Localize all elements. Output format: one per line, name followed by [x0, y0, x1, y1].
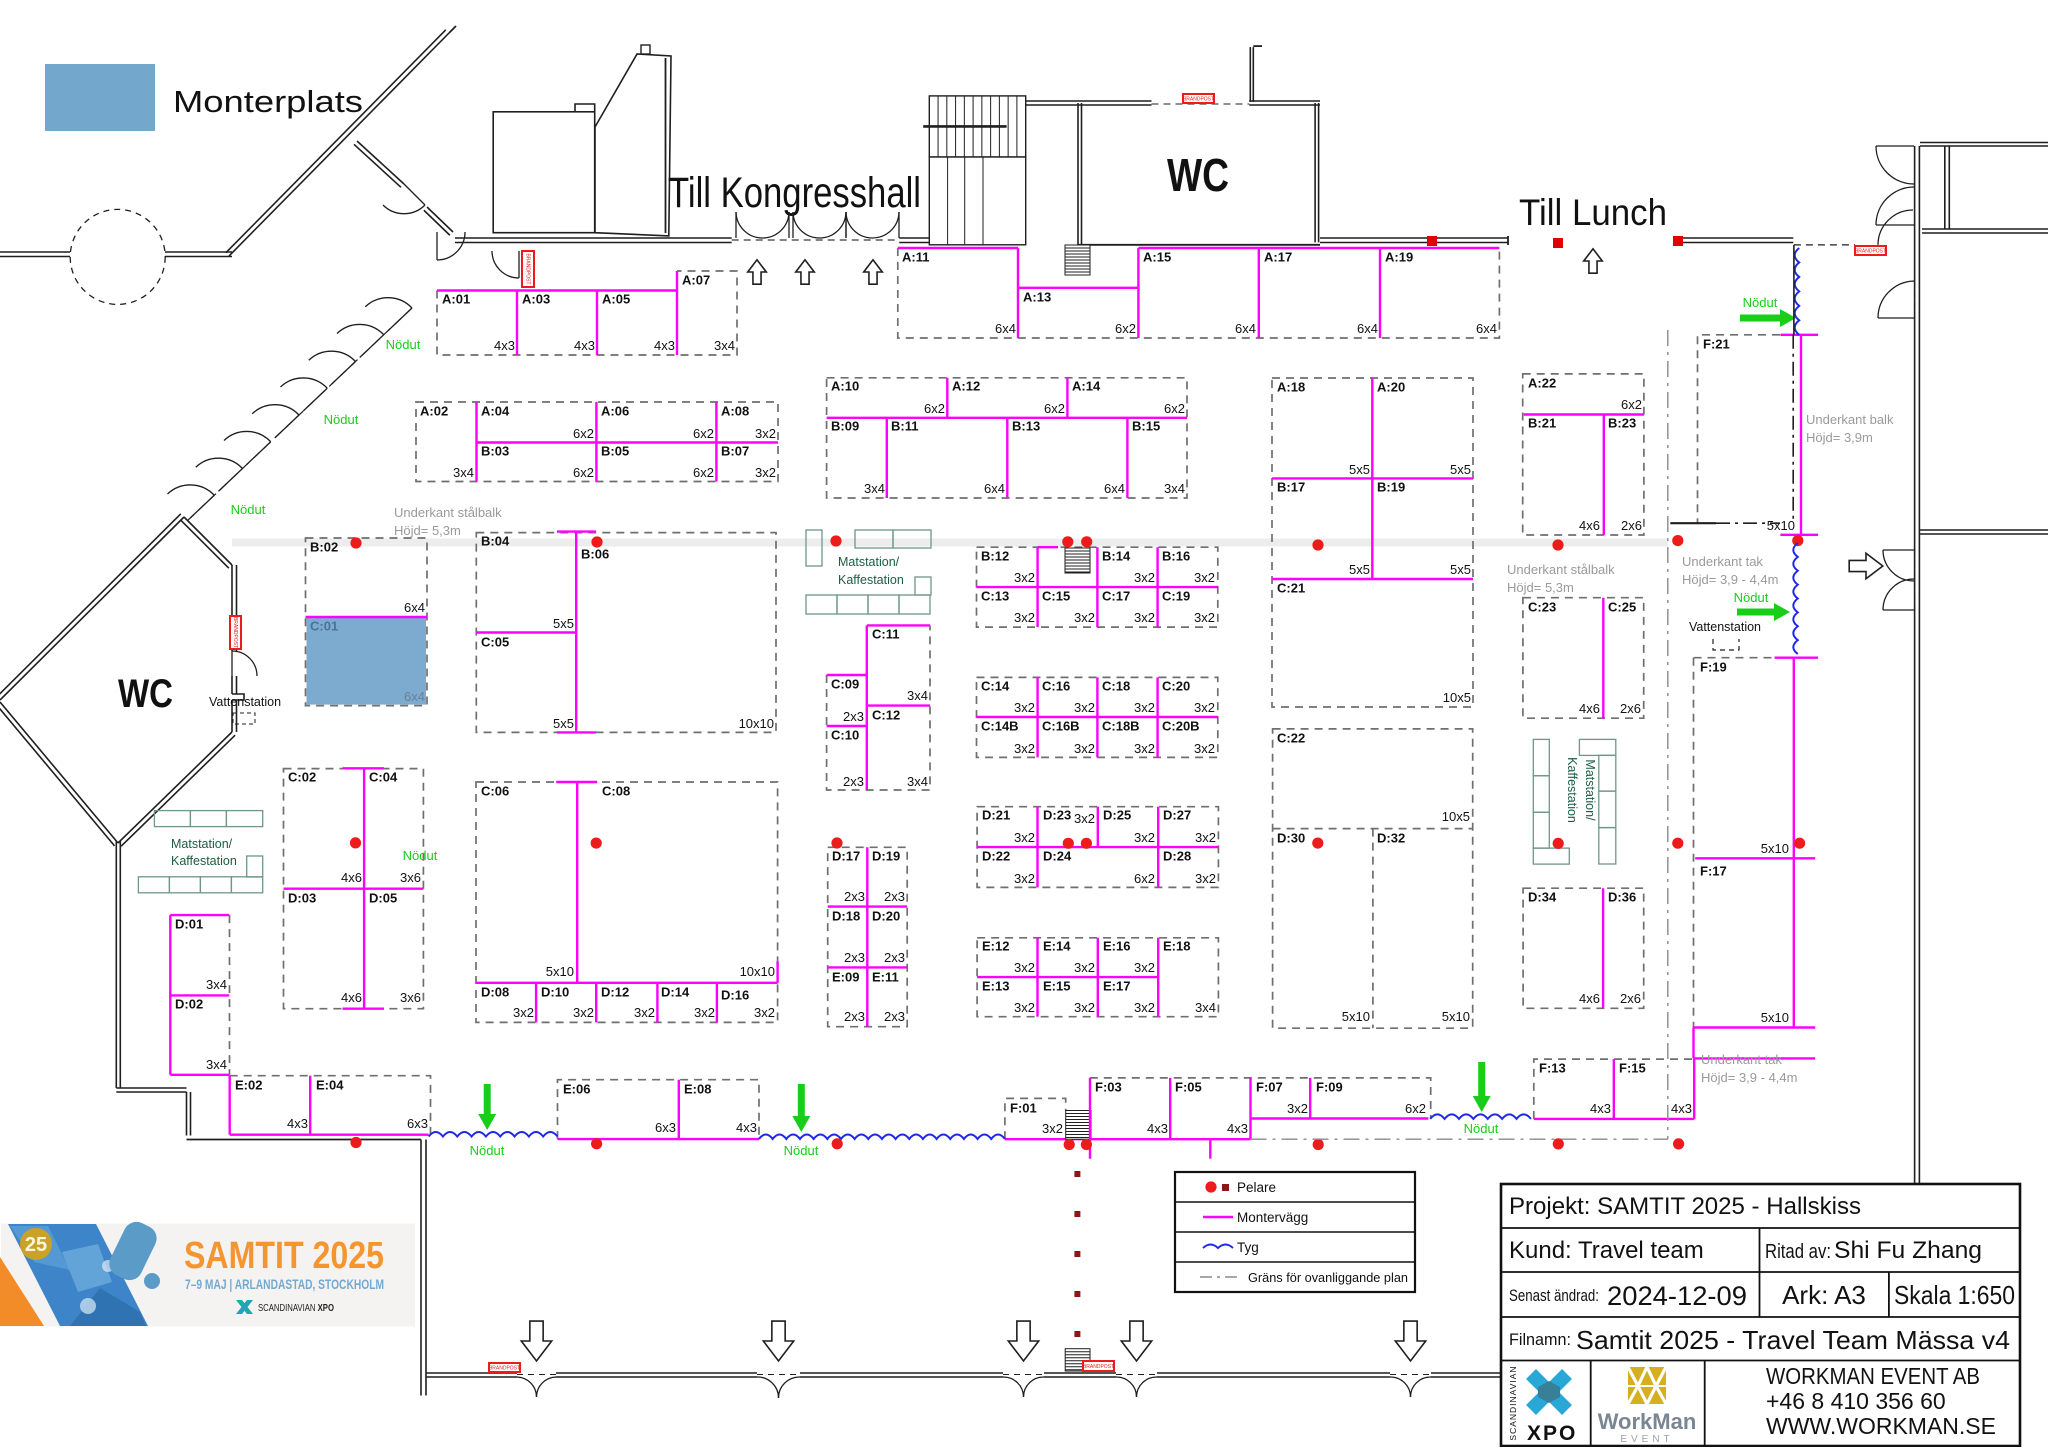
svg-text:5x5: 5x5	[553, 716, 574, 731]
svg-text:SCANDINAVIAN XPO: SCANDINAVIAN XPO	[258, 1302, 334, 1314]
svg-text:C:25: C:25	[1608, 600, 1636, 615]
svg-text:3x2: 3x2	[1195, 830, 1216, 845]
svg-text:5x5: 5x5	[1450, 562, 1471, 577]
svg-text:F:01: F:01	[1010, 1101, 1037, 1116]
svg-text:6x3: 6x3	[655, 1120, 676, 1135]
svg-text:A:15: A:15	[1143, 250, 1171, 265]
svg-text:3x2: 3x2	[755, 465, 776, 480]
svg-text:4x3: 4x3	[1590, 1101, 1611, 1116]
svg-text:D:34: D:34	[1528, 890, 1557, 905]
svg-text:Ark: A3: Ark: A3	[1782, 1280, 1866, 1310]
svg-text:Höjd= 5,3m: Höjd= 5,3m	[1507, 580, 1574, 595]
svg-text:C:22: C:22	[1277, 731, 1305, 746]
svg-text:Projekt: SAMTIT 2025 - Hallski: Projekt: SAMTIT 2025 - Hallskiss	[1509, 1193, 1861, 1220]
svg-text:Till Kongresshall: Till Kongresshall	[668, 169, 921, 217]
svg-text:E:08: E:08	[684, 1082, 711, 1097]
svg-text:4x3: 4x3	[494, 338, 515, 353]
svg-text:2x6: 2x6	[1620, 991, 1641, 1006]
svg-text:C:18: C:18	[1102, 679, 1130, 694]
svg-text:3x6: 3x6	[400, 990, 421, 1005]
svg-text:Nödut: Nödut	[324, 412, 359, 427]
svg-text:3x2: 3x2	[1194, 741, 1215, 756]
svg-text:B:12: B:12	[981, 549, 1009, 564]
svg-text:A:22: A:22	[1528, 376, 1556, 391]
svg-text:E:09: E:09	[832, 970, 859, 985]
svg-text:10x5: 10x5	[1442, 809, 1470, 824]
svg-text:6x4: 6x4	[1235, 321, 1256, 336]
svg-text:C:08: C:08	[602, 784, 630, 799]
svg-text:D:08: D:08	[481, 985, 509, 1000]
svg-text:5x5: 5x5	[1349, 462, 1370, 477]
svg-text:3x2: 3x2	[513, 1005, 534, 1020]
svg-text:3x2: 3x2	[1014, 830, 1035, 845]
svg-text:B:23: B:23	[1608, 416, 1636, 431]
svg-text:D:01: D:01	[175, 917, 203, 932]
svg-text:D:27: D:27	[1163, 808, 1191, 823]
svg-text:Pelare: Pelare	[1237, 1180, 1276, 1195]
svg-text:A:18: A:18	[1277, 380, 1305, 395]
svg-text:Nödut: Nödut	[470, 1143, 505, 1158]
svg-text:Underkant balk: Underkant balk	[1806, 412, 1894, 427]
svg-text:XPO: XPO	[1527, 1422, 1577, 1445]
svg-text:5x5: 5x5	[1450, 462, 1471, 477]
svg-text:Nödut: Nödut	[1743, 295, 1778, 310]
svg-text:F:17: F:17	[1700, 864, 1727, 879]
svg-text:6x4: 6x4	[404, 689, 425, 704]
svg-text:6x2: 6x2	[1405, 1101, 1426, 1116]
svg-text:2x3: 2x3	[844, 1009, 865, 1024]
svg-text:C:15: C:15	[1042, 589, 1070, 604]
svg-text:E:14: E:14	[1043, 939, 1071, 954]
svg-text:Underkant tak: Underkant tak	[1701, 1052, 1782, 1067]
svg-text:WORKMAN EVENT AB: WORKMAN EVENT AB	[1766, 1363, 1980, 1389]
svg-text:A:17: A:17	[1264, 250, 1292, 265]
svg-text:6x4: 6x4	[995, 321, 1016, 336]
svg-text:C:11: C:11	[872, 627, 899, 642]
svg-text:C:09: C:09	[831, 677, 859, 692]
svg-text:D:10: D:10	[541, 985, 569, 1000]
svg-text:D:22: D:22	[982, 849, 1010, 864]
svg-text:E:02: E:02	[235, 1078, 262, 1093]
svg-text:2x6: 2x6	[1621, 518, 1642, 533]
svg-text:B:17: B:17	[1277, 480, 1305, 495]
svg-text:B:13: B:13	[1012, 419, 1040, 434]
svg-text:A:05: A:05	[602, 292, 630, 307]
svg-text:3x2: 3x2	[1014, 570, 1035, 585]
svg-text:3x4: 3x4	[714, 338, 735, 353]
svg-text:4x3: 4x3	[1671, 1101, 1692, 1116]
svg-text:5x10: 5x10	[1761, 841, 1789, 856]
svg-text:C:13: C:13	[981, 589, 1009, 604]
svg-text:4x3: 4x3	[736, 1120, 757, 1135]
svg-text:A:02: A:02	[420, 404, 448, 419]
svg-text:B:15: B:15	[1132, 419, 1160, 434]
svg-text:Nödut: Nödut	[784, 1143, 819, 1158]
svg-text:E:04: E:04	[316, 1078, 344, 1093]
svg-text:F:05: F:05	[1175, 1080, 1202, 1095]
svg-text:E:16: E:16	[1103, 939, 1130, 954]
svg-text:3x2: 3x2	[1134, 610, 1155, 625]
svg-text:4x3: 4x3	[1147, 1121, 1168, 1136]
svg-text:F:13: F:13	[1539, 1061, 1566, 1076]
svg-text:EVENT: EVENT	[1620, 1434, 1673, 1445]
svg-text:3x2: 3x2	[1074, 741, 1095, 756]
svg-text:B:06: B:06	[581, 547, 609, 562]
svg-text:Matstation/: Matstation/	[1583, 759, 1597, 821]
svg-text:E:12: E:12	[982, 939, 1009, 954]
svg-text:C:20: C:20	[1162, 679, 1190, 694]
svg-text:2024-12-09: 2024-12-09	[1607, 1281, 1747, 1311]
svg-text:Vattenstation: Vattenstation	[209, 695, 281, 709]
svg-text:B:05: B:05	[601, 444, 629, 459]
svg-text:D:19: D:19	[872, 849, 900, 864]
svg-text:3x4: 3x4	[864, 481, 885, 496]
svg-text:C:10: C:10	[831, 728, 859, 743]
svg-text:SCANDINAVIAN: SCANDINAVIAN	[1508, 1365, 1518, 1440]
svg-text:A:04: A:04	[481, 404, 510, 419]
svg-text:6x3: 6x3	[407, 1116, 428, 1131]
svg-text:3x2: 3x2	[1074, 960, 1095, 975]
svg-text:6x2: 6x2	[924, 401, 945, 416]
svg-text:6x2: 6x2	[1621, 397, 1642, 412]
svg-text:3x2: 3x2	[1134, 960, 1155, 975]
svg-text:6x4: 6x4	[984, 481, 1005, 496]
svg-text:F:09: F:09	[1316, 1080, 1343, 1095]
svg-text:2x3: 2x3	[884, 889, 905, 904]
svg-text:5x10: 5x10	[1767, 518, 1795, 533]
svg-text:Nödut: Nödut	[1464, 1121, 1499, 1136]
svg-text:4x3: 4x3	[574, 338, 595, 353]
svg-text:D:24: D:24	[1043, 849, 1072, 864]
svg-text:D:14: D:14	[661, 985, 690, 1000]
svg-text:3x2: 3x2	[1134, 700, 1155, 715]
svg-text:Tyg: Tyg	[1237, 1240, 1259, 1255]
svg-text:E:11: E:11	[872, 970, 899, 985]
svg-text:Shi Fu Zhang: Shi Fu Zhang	[1834, 1237, 1982, 1264]
svg-text:WC: WC	[1167, 149, 1229, 201]
svg-text:3x2: 3x2	[1014, 700, 1035, 715]
svg-text:E:13: E:13	[982, 979, 1009, 994]
svg-text:+46 8 410 356 60: +46 8 410 356 60	[1766, 1388, 1946, 1414]
svg-text:2x3: 2x3	[843, 774, 864, 789]
svg-text:6x2: 6x2	[1134, 871, 1155, 886]
svg-text:D:17: D:17	[832, 849, 860, 864]
svg-text:Underkant stålbalk: Underkant stålbalk	[1507, 562, 1615, 577]
svg-text:5x10: 5x10	[1342, 1009, 1370, 1024]
svg-text:D:05: D:05	[369, 891, 397, 906]
svg-text:Senast ändrad:: Senast ändrad:	[1509, 1287, 1599, 1305]
svg-text:BRANDPOST: BRANDPOST	[232, 617, 238, 648]
svg-text:6x2: 6x2	[1044, 401, 1065, 416]
svg-text:F:19: F:19	[1700, 660, 1727, 675]
svg-text:3x2: 3x2	[1042, 1121, 1063, 1136]
svg-text:D:28: D:28	[1163, 849, 1191, 864]
svg-text:E:06: E:06	[563, 1082, 590, 1097]
svg-text:E:17: E:17	[1103, 979, 1130, 994]
svg-text:D:30: D:30	[1277, 831, 1305, 846]
svg-text:6x2: 6x2	[573, 426, 594, 441]
svg-text:6x2: 6x2	[1164, 401, 1185, 416]
svg-text:A:11: A:11	[902, 250, 929, 265]
svg-text:3x4: 3x4	[206, 977, 227, 992]
svg-text:Kaffestation: Kaffestation	[838, 573, 904, 587]
svg-text:3x2: 3x2	[1134, 741, 1155, 756]
svg-text:A:03: A:03	[522, 292, 550, 307]
svg-text:B:21: B:21	[1528, 416, 1556, 431]
svg-text:Vattenstation: Vattenstation	[1689, 620, 1761, 634]
svg-text:Gräns för ovanliggande plan: Gräns för ovanliggande plan	[1248, 1270, 1408, 1285]
svg-text:3x2: 3x2	[1134, 570, 1155, 585]
svg-text:Samtit 2025 - Travel Team Mäss: Samtit 2025 - Travel Team Mässa v4	[1576, 1325, 2010, 1355]
svg-text:3x2: 3x2	[1014, 1000, 1035, 1015]
svg-text:D:03: D:03	[288, 891, 316, 906]
svg-text:6x2: 6x2	[693, 465, 714, 480]
svg-text:Skala 1:650: Skala 1:650	[1894, 1280, 2015, 1310]
svg-text:4x3: 4x3	[287, 1116, 308, 1131]
svg-text:B:02: B:02	[310, 540, 338, 555]
svg-text:4x6: 4x6	[341, 870, 362, 885]
svg-text:Matstation/: Matstation/	[838, 555, 900, 569]
svg-text:Kaffestation: Kaffestation	[1565, 757, 1579, 823]
svg-text:B:03: B:03	[481, 444, 509, 459]
svg-text:3x2: 3x2	[1074, 1000, 1095, 1015]
svg-text:A:13: A:13	[1023, 290, 1051, 305]
svg-text:6x2: 6x2	[1115, 321, 1136, 336]
svg-text:BRANDPOST: BRANDPOST	[525, 253, 531, 284]
svg-text:4x6: 4x6	[1579, 991, 1600, 1006]
svg-text:WorkMan: WorkMan	[1598, 1409, 1697, 1434]
svg-text:4x6: 4x6	[1579, 518, 1600, 533]
svg-text:C:05: C:05	[481, 635, 509, 650]
svg-text:C:01: C:01	[310, 619, 338, 634]
svg-text:10x10: 10x10	[740, 964, 775, 979]
svg-text:F:07: F:07	[1256, 1080, 1283, 1095]
svg-text:3x2: 3x2	[1074, 610, 1095, 625]
svg-text:3x2: 3x2	[755, 426, 776, 441]
svg-text:3x2: 3x2	[1014, 610, 1035, 625]
svg-text:3x2: 3x2	[1287, 1101, 1308, 1116]
svg-text:4x3: 4x3	[1227, 1121, 1248, 1136]
svg-text:D:20: D:20	[872, 909, 900, 924]
svg-text:Kaffestation: Kaffestation	[171, 854, 237, 868]
svg-text:A:20: A:20	[1377, 380, 1405, 395]
svg-text:C:19: C:19	[1162, 589, 1190, 604]
svg-text:3x2: 3x2	[634, 1005, 655, 1020]
svg-text:Kund: Travel team: Kund: Travel team	[1509, 1237, 1704, 1264]
svg-text:C:12: C:12	[872, 708, 900, 723]
svg-text:Nödut: Nödut	[231, 502, 266, 517]
svg-text:B:04: B:04	[481, 534, 510, 549]
svg-text:5x5: 5x5	[1349, 562, 1370, 577]
svg-text:3x4: 3x4	[1164, 481, 1185, 496]
svg-text:7–9 MAJ | ARLANDASTAD, STOCK: 7–9 MAJ | ARLANDASTAD, STOCKHOLM	[185, 1276, 384, 1292]
svg-text:5x10: 5x10	[1761, 1010, 1789, 1025]
svg-text:Höjd= 3,9m: Höjd= 3,9m	[1806, 430, 1873, 445]
svg-text:BRANDPOST: BRANDPOST	[1083, 1364, 1114, 1370]
svg-text:6x2: 6x2	[573, 465, 594, 480]
svg-text:3x2: 3x2	[1134, 1000, 1155, 1015]
svg-text:3x4: 3x4	[1195, 1000, 1216, 1015]
svg-text:F:03: F:03	[1095, 1080, 1122, 1095]
svg-text:6x2: 6x2	[693, 426, 714, 441]
svg-text:3x6: 3x6	[400, 870, 421, 885]
svg-text:BRANDPOST: BRANDPOST	[489, 1366, 520, 1372]
svg-text:3x2: 3x2	[1195, 871, 1216, 886]
svg-text:Montervägg: Montervägg	[1237, 1210, 1308, 1225]
svg-text:3x2: 3x2	[694, 1005, 715, 1020]
svg-text:3x4: 3x4	[453, 465, 474, 480]
svg-text:WWW.WORKMAN.SE: WWW.WORKMAN.SE	[1766, 1413, 1996, 1439]
svg-text:A:19: A:19	[1385, 250, 1413, 265]
svg-text:B:11: B:11	[891, 419, 918, 434]
svg-text:SAMTIT 2025: SAMTIT 2025	[184, 1235, 384, 1277]
svg-text:D:18: D:18	[832, 909, 860, 924]
svg-text:Ritad av:: Ritad av:	[1765, 1241, 1831, 1263]
svg-text:A:07: A:07	[682, 273, 710, 288]
svg-text:C:02: C:02	[288, 770, 316, 785]
svg-text:F:15: F:15	[1619, 1061, 1646, 1076]
svg-text:5x10: 5x10	[1442, 1009, 1470, 1024]
svg-text:2x3: 2x3	[884, 950, 905, 965]
svg-text:D:32: D:32	[1377, 831, 1405, 846]
svg-text:3x2: 3x2	[754, 1005, 775, 1020]
svg-text:2x3: 2x3	[884, 1009, 905, 1024]
svg-text:3x4: 3x4	[907, 688, 928, 703]
svg-text:A:14: A:14	[1072, 379, 1101, 394]
svg-text:2x3: 2x3	[844, 950, 865, 965]
svg-text:6x4: 6x4	[1104, 481, 1125, 496]
svg-text:A:06: A:06	[601, 404, 629, 419]
svg-text:F:21: F:21	[1703, 337, 1730, 352]
svg-text:6x4: 6x4	[1476, 321, 1497, 336]
svg-text:D:21: D:21	[982, 808, 1010, 823]
svg-text:Höjd= 5,3m: Höjd= 5,3m	[394, 523, 461, 538]
svg-text:3x2: 3x2	[1194, 610, 1215, 625]
svg-text:C:14: C:14	[981, 679, 1010, 694]
svg-text:2x6: 2x6	[1620, 701, 1641, 716]
svg-text:Till Lunch: Till Lunch	[1519, 192, 1667, 233]
svg-text:Underkant stålbalk: Underkant stålbalk	[394, 505, 502, 520]
svg-text:B:07: B:07	[721, 444, 749, 459]
svg-text:3x2: 3x2	[573, 1005, 594, 1020]
svg-text:3x2: 3x2	[1014, 741, 1035, 756]
svg-text:D:36: D:36	[1608, 890, 1636, 905]
svg-text:E:18: E:18	[1163, 939, 1190, 954]
svg-text:6x4: 6x4	[1357, 321, 1378, 336]
svg-text:B:14: B:14	[1102, 549, 1131, 564]
svg-text:3x4: 3x4	[206, 1057, 227, 1072]
svg-text:A:08: A:08	[721, 404, 749, 419]
svg-text:4x6: 4x6	[1579, 701, 1600, 716]
svg-text:3x2: 3x2	[1194, 570, 1215, 585]
svg-text:Höjd= 3,9 - 4,4m: Höjd= 3,9 - 4,4m	[1701, 1070, 1797, 1085]
svg-text:B:16: B:16	[1162, 549, 1190, 564]
svg-text:BRANDPOST: BRANDPOST	[1855, 249, 1886, 255]
svg-text:C:20B: C:20B	[1162, 719, 1200, 734]
svg-text:3x2: 3x2	[1134, 830, 1155, 845]
svg-text:D:25: D:25	[1103, 808, 1131, 823]
svg-text:2x3: 2x3	[843, 709, 864, 724]
svg-text:C:06: C:06	[481, 784, 509, 799]
svg-text:Monterplats: Monterplats	[173, 84, 363, 119]
svg-text:3x2: 3x2	[1074, 811, 1095, 826]
svg-text:Filnamn:: Filnamn:	[1509, 1331, 1571, 1349]
svg-text:A:12: A:12	[952, 379, 980, 394]
svg-text:C:18B: C:18B	[1102, 719, 1140, 734]
svg-text:5x5: 5x5	[553, 616, 574, 631]
svg-text:C:14B: C:14B	[981, 719, 1019, 734]
svg-text:10x10: 10x10	[739, 716, 774, 731]
svg-text:C:04: C:04	[369, 770, 398, 785]
svg-text:Matstation/: Matstation/	[171, 837, 233, 851]
svg-text:C:17: C:17	[1102, 589, 1130, 604]
svg-text:5x10: 5x10	[546, 964, 574, 979]
svg-text:B:09: B:09	[831, 419, 859, 434]
svg-text:C:21: C:21	[1277, 581, 1305, 596]
svg-text:WC: WC	[118, 672, 173, 716]
svg-text:Höjd= 3,9 - 4,4m: Höjd= 3,9 - 4,4m	[1682, 572, 1778, 587]
svg-text:D:16: D:16	[721, 988, 749, 1003]
svg-text:C:23: C:23	[1528, 600, 1556, 615]
svg-text:B:19: B:19	[1377, 480, 1405, 495]
svg-text:3x2: 3x2	[1014, 871, 1035, 886]
svg-text:BRANDPOST: BRANDPOST	[1183, 97, 1214, 103]
svg-text:3x2: 3x2	[1194, 700, 1215, 715]
svg-text:3x2: 3x2	[1014, 960, 1035, 975]
svg-text:3x4: 3x4	[907, 774, 928, 789]
svg-text:10x5: 10x5	[1443, 690, 1471, 705]
svg-text:C:16: C:16	[1042, 679, 1070, 694]
svg-text:D:23: D:23	[1043, 808, 1071, 823]
svg-text:4x3: 4x3	[654, 338, 675, 353]
svg-text:D:12: D:12	[601, 985, 629, 1000]
svg-text:6x4: 6x4	[404, 600, 425, 615]
svg-text:25: 25	[25, 1234, 47, 1256]
svg-text:A:10: A:10	[831, 379, 859, 394]
svg-text:Nödut: Nödut	[386, 337, 421, 352]
svg-text:Underkant tak: Underkant tak	[1682, 554, 1763, 569]
svg-text:A:01: A:01	[442, 292, 470, 307]
svg-text:3x2: 3x2	[1074, 700, 1095, 715]
svg-text:D:02: D:02	[175, 997, 203, 1012]
svg-text:2x3: 2x3	[844, 889, 865, 904]
svg-text:Nödut: Nödut	[403, 848, 438, 863]
svg-text:E:15: E:15	[1043, 979, 1070, 994]
svg-text:C:16B: C:16B	[1042, 719, 1080, 734]
svg-text:4x6: 4x6	[341, 990, 362, 1005]
svg-text:Nödut: Nödut	[1734, 590, 1769, 605]
